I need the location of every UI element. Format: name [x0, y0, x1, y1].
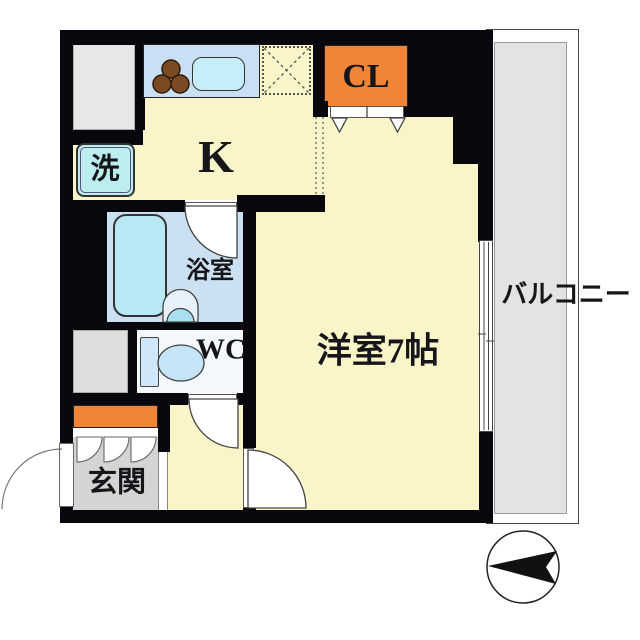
floor-plan: K CL 洗 浴室 WC 玄関 洋室7帖 バルコニー: [0, 0, 640, 640]
wc-door-leaf: [188, 394, 237, 404]
wall-left-column: [60, 200, 107, 330]
wall-closet-stub: [313, 101, 328, 117]
wall-bath-top: [107, 200, 185, 212]
wall-right-lower: [479, 430, 493, 523]
main-room-floor-upper: [325, 117, 453, 212]
hallway-floor: [168, 405, 243, 510]
wall-closet-left: [313, 30, 324, 101]
balcony-window: [479, 240, 493, 432]
wall-step-1: [453, 117, 493, 164]
entrance-label: 玄関: [88, 469, 146, 498]
balcony-label: バルコニー: [501, 282, 630, 308]
wall-entrance-right-stub: [158, 405, 170, 452]
entrance-threshold: [158, 452, 168, 510]
closet-label: CL: [342, 60, 389, 94]
shoe-cabinet: [73, 405, 158, 428]
wall-topright-block: [408, 30, 493, 117]
front-door-arc: [2, 449, 62, 509]
main-room-floor-step: [453, 164, 480, 212]
front-door-leaf: [59, 443, 74, 507]
service-shaft-top: [73, 44, 135, 130]
wall-wc-bottom-right: [237, 393, 256, 405]
balcony-floor: [494, 42, 567, 514]
kitchen-label: K: [198, 134, 234, 180]
wall-wc-left: [128, 330, 137, 393]
closet-door-strip: [330, 106, 404, 118]
compass-north-icon: [487, 531, 559, 603]
wc-label: WC: [196, 336, 246, 365]
wall-bath-right: [243, 200, 256, 448]
bathroom-label: 浴室: [186, 259, 234, 283]
shoe-cabinet-strip: [73, 428, 158, 437]
main-room-door-leaf: [243, 448, 254, 508]
wall-bath-wc: [107, 322, 243, 330]
main-room-label: 洋室7帖: [317, 334, 440, 369]
bathtub: [113, 214, 167, 317]
washer-label: 洗: [90, 156, 119, 185]
refrigerator-space-icon: [262, 46, 311, 95]
bathroom-door-leaf: [185, 202, 237, 211]
toilet-tank: [140, 337, 159, 387]
wall-step-2: [478, 164, 493, 242]
kitchen-sink: [192, 57, 245, 91]
wall-wc-bottom: [60, 393, 188, 405]
wall-bottom: [60, 510, 493, 523]
service-shaft-mid: [73, 330, 128, 393]
